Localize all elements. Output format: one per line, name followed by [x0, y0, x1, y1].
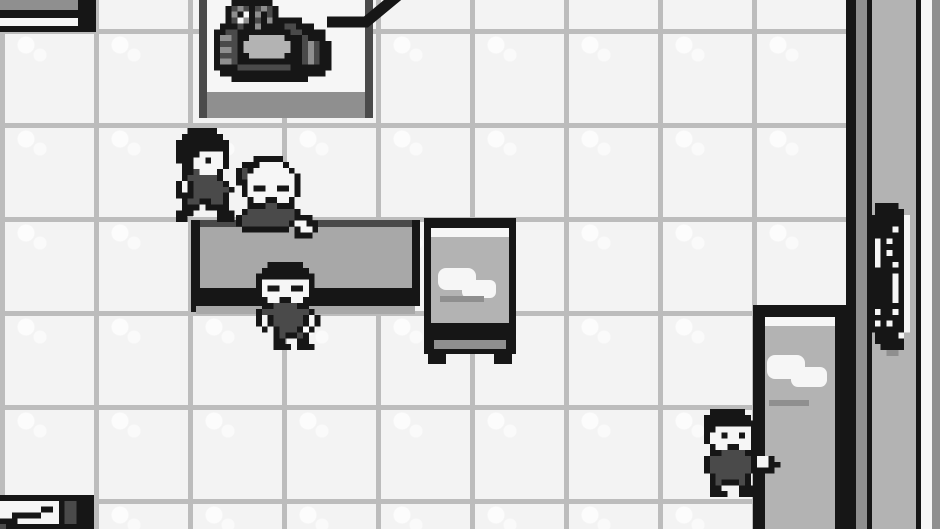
object-part — [921, 0, 932, 529]
npc-kid-sprite-canvas — [698, 403, 792, 497]
npc-kid-sprite — [698, 403, 792, 497]
object-part — [0, 10, 78, 18]
object-part — [0, 18, 78, 26]
object-part — [0, 26, 78, 32]
corner-machine-sprite — [0, 495, 94, 529]
object-part — [932, 0, 940, 529]
npc-oldman-sprite — [230, 156, 324, 250]
object-part — [0, 0, 78, 10]
game-screen[interactable] — [0, 0, 940, 529]
machine-cable — [315, 0, 411, 36]
object-part — [434, 340, 506, 349]
object-part — [428, 352, 446, 364]
study-desk — [424, 216, 516, 364]
object-part — [791, 367, 827, 387]
object-part — [412, 220, 420, 288]
object-part — [846, 0, 856, 529]
npc-oldman-sprite-canvas — [230, 156, 324, 250]
npc-boy-sprite — [250, 256, 344, 350]
bookshelf-base — [0, 0, 96, 32]
object-part — [765, 317, 835, 326]
corner-machine-sprite-canvas — [0, 495, 94, 529]
object-part — [431, 228, 509, 237]
wall-console-sprite — [863, 203, 916, 356]
object-part — [494, 352, 512, 364]
object-part — [207, 92, 365, 118]
object-part — [78, 0, 96, 32]
npc-boy-sprite-canvas — [250, 256, 344, 350]
object-part — [199, 0, 207, 118]
wall-console-sprite-canvas — [863, 203, 916, 356]
object-part — [440, 296, 484, 302]
